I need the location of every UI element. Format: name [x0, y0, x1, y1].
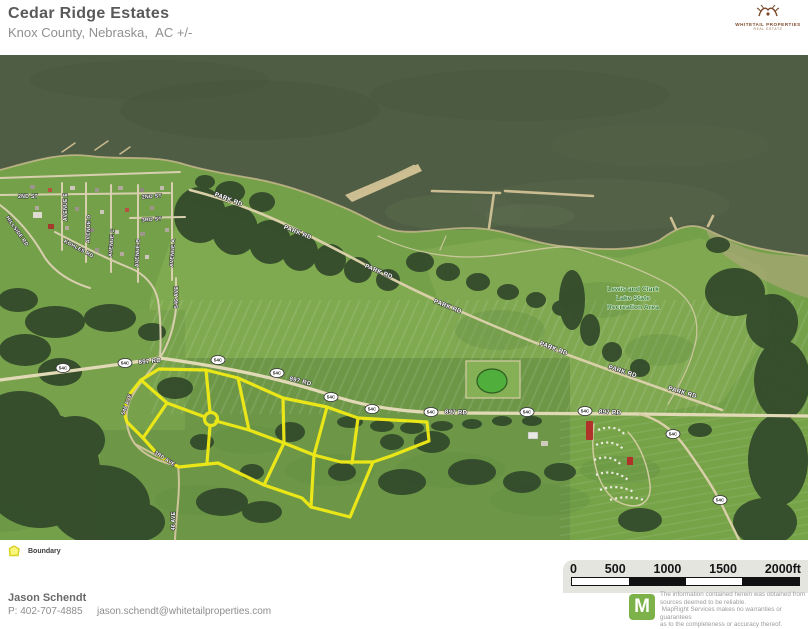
road-label: 897 RD — [445, 409, 468, 417]
route-shield-label: 54C — [669, 432, 678, 437]
route-shield-label: 54C — [214, 358, 223, 363]
route-shield-label: 54C — [327, 395, 336, 400]
route-shield-label: 54C — [716, 498, 725, 503]
page-title: Cedar Ridge Estates — [8, 5, 169, 23]
road-label: 2ND ST — [18, 194, 39, 200]
whitetail-properties-logo: WHITETAIL PROPERTIES REAL ESTATE — [733, 2, 803, 31]
scale-bar-labels: 0500100015002000ft — [563, 560, 808, 576]
antlers-icon — [733, 2, 803, 22]
scale-tick-label: 1000 — [654, 562, 682, 576]
route-shield-label: 54C — [523, 410, 532, 415]
disclaimer-line: as to the completeness or accuracy there… — [660, 621, 808, 629]
disclaimer-line: The information contained herein was obt… — [660, 591, 808, 599]
route-shield-label: 54C — [581, 409, 590, 414]
road-label: AVENUE D — [86, 215, 93, 244]
red-hut — [627, 457, 633, 465]
mapright-logo: M — [629, 594, 655, 620]
legend: Boundary — [8, 545, 61, 557]
road-label: AVENUE E — [63, 193, 69, 221]
disclaimer-line: sources deemed to be reliable. — [660, 599, 808, 607]
route-shield-label: 54C — [427, 410, 436, 415]
scale-tick-label: 1500 — [709, 562, 737, 576]
route-shield-label: 54C — [273, 371, 282, 376]
pond — [477, 369, 507, 393]
scale-bar: 0500100015002000ft — [563, 560, 808, 593]
route-shield-label: 54C — [368, 407, 377, 412]
agent-email: jason.schendt@whitetailproperties.com — [97, 606, 271, 617]
legend-item-label: Boundary — [28, 548, 61, 555]
route-shield-label: 54C — [59, 366, 68, 371]
agent-name: Jason Schendt — [8, 592, 86, 604]
aerial-map: 54C54C54C54C54C54C54C54C54C54C54C PARK R… — [0, 55, 808, 540]
rec-area-label-line: Lake State — [616, 295, 650, 302]
page-subtitle: Knox County, Nebraska, AC +/- — [8, 25, 192, 40]
disclaimer-text: The information contained herein was obt… — [660, 591, 808, 629]
logo-line2: REAL ESTATE — [733, 27, 803, 31]
route-shield-label: 54C — [121, 361, 130, 366]
header: Cedar Ridge Estates Knox County, Nebrask… — [0, 0, 808, 55]
agent-phone: P: 402-707-4885 — [8, 606, 83, 617]
disclaimer-line: MapRight Services makes no warranties or… — [660, 606, 808, 621]
rec-area-label-line: Lewis and Clark — [607, 286, 659, 293]
scale-tick-label: 500 — [605, 562, 626, 576]
boundary-swatch-icon — [8, 545, 20, 557]
pond-area — [466, 361, 520, 398]
road-label: 546 AVE — [174, 286, 180, 308]
scale-bar-segments — [571, 577, 800, 586]
road-label: 46 AVE — [171, 511, 177, 530]
scale-tick-label: 0 — [570, 562, 577, 576]
rec-area-label-line: Recreation Area — [607, 304, 659, 311]
scale-tick-label: 2000ft — [765, 562, 801, 576]
red-barn — [586, 421, 593, 440]
road-label: 897 RD — [599, 408, 622, 416]
map-canvas: 54C54C54C54C54C54C54C54C54C54C54C PARK R… — [0, 55, 808, 540]
